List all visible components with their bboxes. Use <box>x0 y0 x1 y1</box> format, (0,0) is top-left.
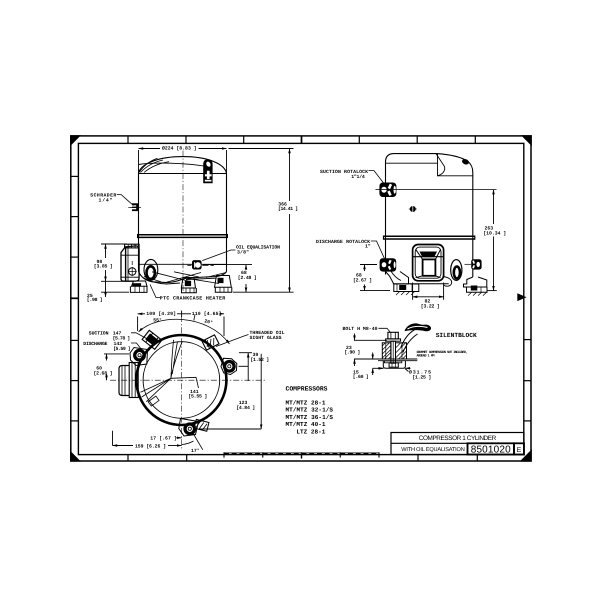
svg-text:SUCTION ROTALOCK: SUCTION ROTALOCK <box>320 169 368 175</box>
svg-text:[1.25 ]: [1.25 ] <box>412 374 431 380</box>
svg-text:PTC CRANKCASE HEATER: PTC CRANKCASE HEATER <box>160 296 226 302</box>
svg-text:142: 142 <box>114 341 123 347</box>
svg-text:MT/MTZ 40-1: MT/MTZ 40-1 <box>286 421 326 428</box>
svg-text:55°: 55° <box>153 318 162 324</box>
svg-text:WITH OIL EQUALISATION: WITH OIL EQUALISATION <box>401 447 465 453</box>
svg-text:[5.59 ]: [5.59 ] <box>113 346 131 352</box>
svg-text:AROUND 1 MM: AROUND 1 MM <box>417 354 435 359</box>
svg-text:[3.85 ]: [3.85 ] <box>94 264 113 270</box>
svg-text:110 [4.65]: 110 [4.65] <box>192 311 222 317</box>
svg-text:BOLT H M8-40: BOLT H M8-40 <box>343 326 378 332</box>
svg-text:[.98 ]: [.98 ] <box>87 297 103 303</box>
svg-text:E: E <box>517 447 522 454</box>
svg-text:SILENTBLOCK: SILENTBLOCK <box>436 332 477 339</box>
svg-text:MT/MTZ 36-1/S: MT/MTZ 36-1/S <box>286 414 334 421</box>
svg-text:DISCHARGE: DISCHARGE <box>83 341 107 347</box>
svg-text:LTZ 28-1: LTZ 28-1 <box>296 429 325 436</box>
svg-text:[3.22 ]: [3.22 ] <box>421 304 440 310</box>
svg-text:[.60 ]: [.60 ] <box>353 374 369 380</box>
svg-text:[2.68 ]: [2.68 ] <box>94 370 113 376</box>
svg-text:109 [4.29]: 109 [4.29] <box>146 311 176 317</box>
svg-text:17 [.67 ]: 17 [.67 ] <box>150 436 177 442</box>
svg-text:[2.48 ]: [2.48 ] <box>238 275 257 281</box>
svg-text:SIGHT GLASS: SIGHT GLASS <box>250 335 282 341</box>
svg-text:[5.55 ]: [5.55 ] <box>188 394 207 400</box>
svg-text:SUCTION: SUCTION <box>89 331 109 337</box>
svg-text:THREADED OIL: THREADED OIL <box>250 330 285 336</box>
svg-text:[.90 ]: [.90 ] <box>344 350 360 356</box>
svg-text:COMPRESSOR 1 CYLINDER: COMPRESSOR 1 CYLINDER <box>419 435 497 442</box>
svg-text:3/8": 3/8" <box>237 249 249 255</box>
svg-text:159 [6.26 ]: 159 [6.26 ] <box>135 444 166 450</box>
svg-text:[10.34 ]: [10.34 ] <box>483 230 506 236</box>
svg-text:[5.78 ]: [5.78 ] <box>113 336 131 342</box>
svg-text:[1.52 ]: [1.52 ] <box>250 357 269 363</box>
svg-text:MT/MTZ 32-1/S: MT/MTZ 32-1/S <box>286 407 334 414</box>
svg-text:17°: 17° <box>191 448 200 454</box>
svg-text:MT/MTZ 28-1: MT/MTZ 28-1 <box>286 400 326 407</box>
svg-text:[2.67 ]: [2.67 ] <box>353 277 372 283</box>
svg-text:COMPRESSORS: COMPRESSORS <box>286 386 328 393</box>
svg-text:1": 1" <box>365 243 371 249</box>
svg-text:[4.84 ]: [4.84 ] <box>236 405 255 411</box>
svg-text:147: 147 <box>113 331 122 337</box>
svg-text:[14.41 ]: [14.41 ] <box>278 206 298 212</box>
svg-text:Ø224 [8.83 ]: Ø224 [8.83 ] <box>162 146 197 152</box>
svg-text:DISCHARGE ROTALOCK: DISCHARGE ROTALOCK <box>316 239 370 245</box>
svg-text:1"1/4: 1"1/4 <box>351 174 365 180</box>
svg-text:8501020: 8501020 <box>471 445 511 456</box>
svg-text:1/4": 1/4" <box>99 197 113 203</box>
